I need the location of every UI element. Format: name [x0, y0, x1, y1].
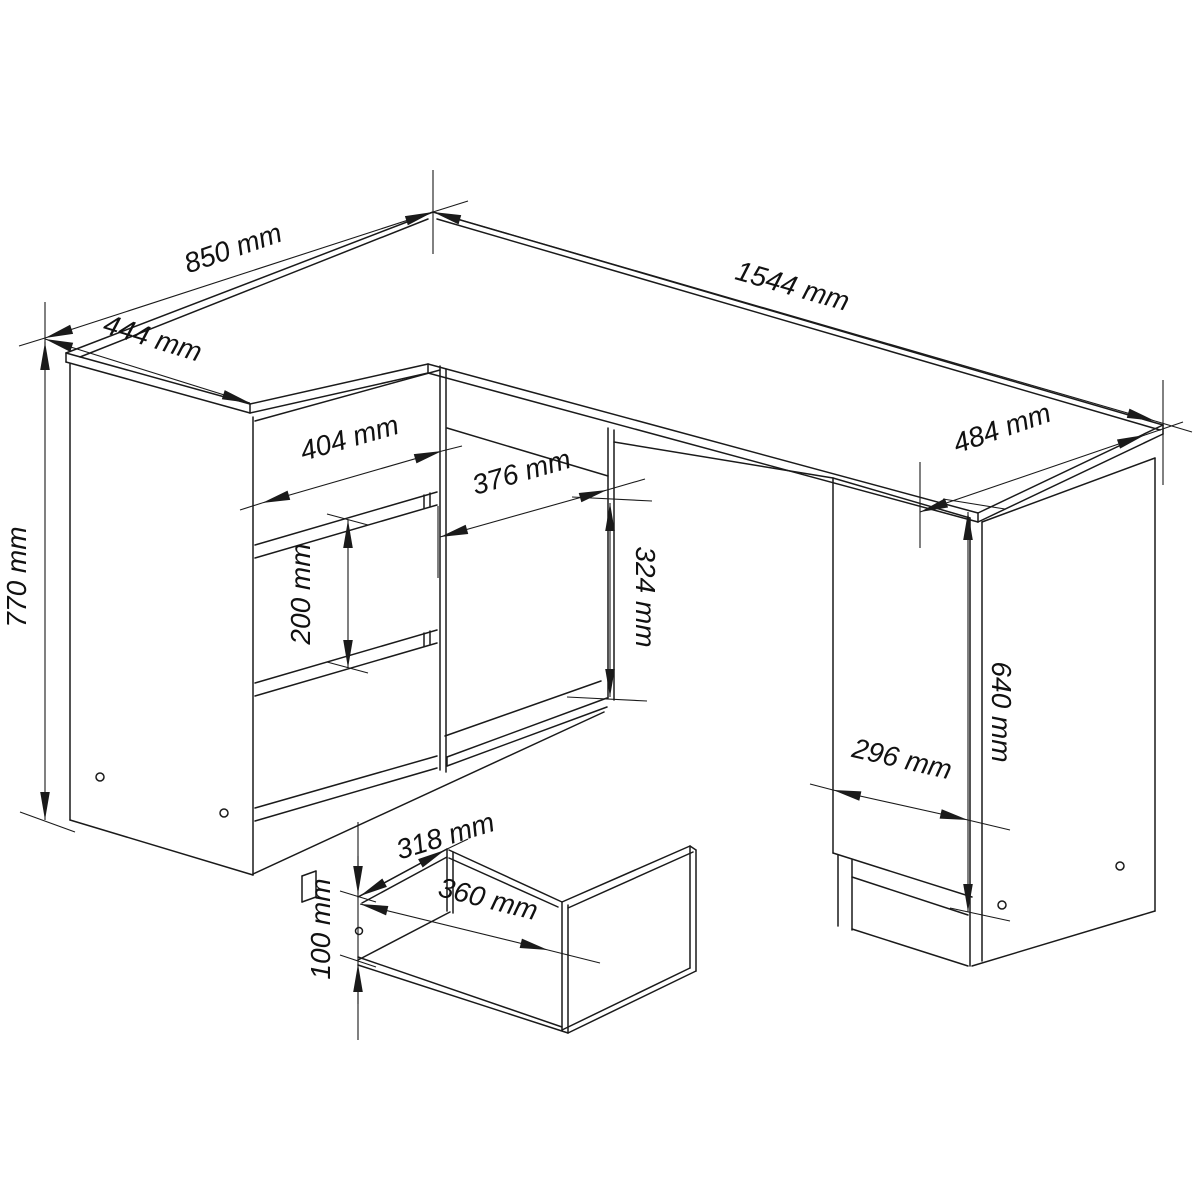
dim-640-label: 640 mm	[986, 661, 1017, 762]
dim-484-label: 484 mm	[949, 397, 1055, 459]
dim-200-label: 200 mm	[285, 543, 316, 645]
dim-404-label: 404 mm	[296, 409, 402, 467]
dim-850-label: 850 mm	[180, 217, 286, 279]
technical-drawing: 850 mm 444 mm 1544 mm 484 mm 404 mm 376 …	[0, 0, 1200, 1200]
dim-100-label: 100 mm	[305, 878, 336, 979]
dim-444-label: 444 mm	[100, 308, 206, 367]
pulled-out-drawer	[356, 846, 697, 1033]
dim-360-label: 360 mm	[435, 872, 541, 927]
dim-770-label: 770 mm	[1, 526, 32, 627]
dim-376-label: 376 mm	[468, 443, 574, 501]
dim-324-label: 324 mm	[630, 546, 661, 647]
dimension-lines	[19, 170, 1192, 1040]
dimension-labels: 850 mm 444 mm 1544 mm 484 mm 404 mm 376 …	[1, 217, 1055, 980]
dim-296-label: 296 mm	[848, 732, 955, 785]
dim-1544-label: 1544 mm	[732, 255, 853, 317]
corner-desk-dimension-drawing: 850 mm 444 mm 1544 mm 484 mm 404 mm 376 …	[0, 0, 1200, 1200]
dim-318-label: 318 mm	[392, 806, 498, 865]
